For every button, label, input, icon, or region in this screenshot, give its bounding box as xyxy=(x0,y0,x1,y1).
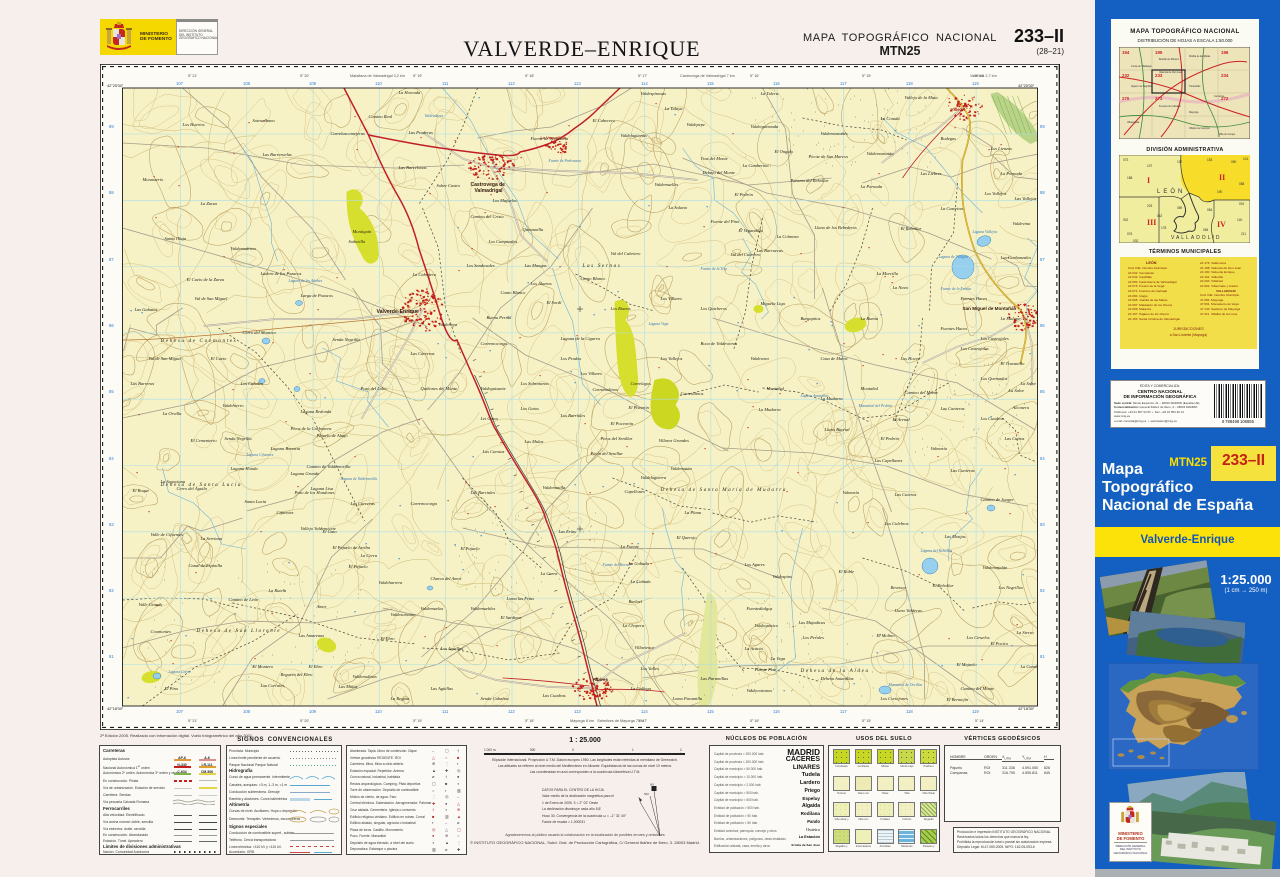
svg-text:Los Corrales: Los Corrales xyxy=(260,683,285,688)
svg-text:Los Ciruelos: Los Ciruelos xyxy=(966,635,990,640)
svg-text:Llano de los Bebederos: Llano de los Bebederos xyxy=(814,225,857,230)
svg-text:5° 16′: 5° 16′ xyxy=(750,719,759,723)
svg-text:Los Perales: Los Perales xyxy=(802,635,825,640)
svg-text:El Sardinar: El Sardinar xyxy=(500,615,522,620)
svg-text:87: 87 xyxy=(1040,257,1045,262)
svg-text:112: 112 xyxy=(508,709,515,714)
svg-text:116: 116 xyxy=(773,81,780,86)
svg-text:Mayorga 8 km Sahelices de Ma: Mayorga 8 km Sahelices de Mayorga 7 km xyxy=(570,719,644,723)
svg-text:Los Culebros: Los Culebros xyxy=(884,521,909,526)
svg-text:Carremocorga: Carremocorga xyxy=(481,341,508,346)
svg-text:084: 084 xyxy=(1203,228,1209,232)
svg-text:Valdevina: Valdevina xyxy=(1013,221,1031,226)
svg-text:089: 089 xyxy=(1177,206,1183,210)
svg-text:Valdemolinos: Valdemolinos xyxy=(353,674,377,679)
svg-text:LEÓN: LEÓN xyxy=(1157,188,1185,195)
svg-text:VALLADOLID: VALLADOLID xyxy=(1171,235,1221,241)
svg-text:Los Quicheros: Los Quicheros xyxy=(700,306,727,311)
svg-text:Los Barriales: Los Barriales xyxy=(470,490,496,495)
svg-text:5° 20′: 5° 20′ xyxy=(300,719,309,723)
svg-text:Camino del Cristo: Camino del Cristo xyxy=(471,214,505,219)
svg-text:Sotrualbano: Sotrualbano xyxy=(253,118,276,123)
svg-text:Llano Burcial: Llano Burcial xyxy=(824,427,851,432)
svg-text:San Miguel de Montañán: San Miguel de Montañán xyxy=(963,306,1017,311)
svg-text:Los Cañales: Los Cañales xyxy=(240,381,264,386)
svg-text:032: 032 xyxy=(1133,239,1139,243)
svg-text:El Pedrón: El Pedrón xyxy=(734,192,754,197)
svg-text:89: 89 xyxy=(109,124,114,129)
svg-text:Boca de Valdevieras: Boca de Valdevieras xyxy=(701,341,738,346)
svg-text:178: 178 xyxy=(1161,226,1167,230)
svg-text:Amor: Amor xyxy=(316,604,327,609)
svg-text:El Cabecero: El Cabecero xyxy=(592,118,616,123)
svg-text:Las Barruecas: Las Barruecas xyxy=(756,248,784,253)
svg-text:Bodegas: Bodegas xyxy=(941,136,957,141)
svg-text:Cerro del Montico: Cerro del Montico xyxy=(243,330,277,335)
svg-text:La Mudarra: La Mudarra xyxy=(758,407,782,412)
svg-text:Los Quemados: Los Quemados xyxy=(980,376,1008,381)
svg-text:Valdelaguerra: Valdelaguerra xyxy=(641,475,667,480)
svg-text:La Chopera: La Chopera xyxy=(622,623,645,628)
svg-text:81: 81 xyxy=(1040,654,1045,659)
svg-text:111: 111 xyxy=(442,709,449,714)
svg-text:118: 118 xyxy=(906,709,913,714)
svg-text:El Bermejín: El Bermejín xyxy=(946,697,969,702)
svg-text:NV: NV xyxy=(650,783,654,787)
svg-text:La Sierra: La Sierra xyxy=(1016,630,1035,635)
svg-text:Carremocorga: Carremocorga xyxy=(411,501,438,506)
svg-text:IV: IV xyxy=(1217,220,1226,229)
svg-text:Algarre de Negrillos: Algarre de Negrillos xyxy=(1131,85,1153,88)
svg-text:Valdemuelles: Valdemuelles xyxy=(655,182,679,187)
svg-text:Tordesillas: Tordesillas xyxy=(1189,85,1201,88)
svg-text:Los Huertos: Los Huertos xyxy=(182,122,205,127)
svg-text:084: 084 xyxy=(1207,208,1213,212)
svg-text:190: 190 xyxy=(1217,190,1223,194)
svg-text:El Sordí: El Sordí xyxy=(546,300,562,305)
svg-text:5° 18′: 5° 18′ xyxy=(525,74,534,78)
svg-text:42°18′30″: 42°18′30″ xyxy=(107,707,124,711)
svg-text:La Cotada: La Cotada xyxy=(880,116,901,121)
svg-text:Reguera del Ebro: Reguera del Ebro xyxy=(280,672,314,677)
svg-text:5° 19′: 5° 19′ xyxy=(413,719,422,723)
svg-text:Los Cortejones: Los Cortejones xyxy=(880,696,909,701)
svg-text:Debajo del Monte: Debajo del Monte xyxy=(702,170,736,175)
svg-text:Santa Olaja: Santa Olaja xyxy=(165,236,187,241)
svg-text:Los Vallejos: Los Vallejos xyxy=(984,191,1007,196)
svg-text:El Roque: El Roque xyxy=(132,488,150,493)
svg-text:Miguela Liqa: Miguela Liqa xyxy=(760,301,786,306)
svg-text:Los Sandovales: Los Sandovales xyxy=(466,263,495,268)
svg-text:117: 117 xyxy=(840,81,847,86)
svg-text:84: 84 xyxy=(1040,456,1045,461)
svg-text:El Pajuelo: El Pajuelo xyxy=(460,546,481,551)
svg-text:Valverde-Enrique: Valverde-Enrique xyxy=(377,309,419,315)
svg-text:Valdemontañés: Valdemontañés xyxy=(821,131,848,136)
svg-text:El Molino: El Molino xyxy=(876,633,896,638)
svg-text:Los Majuelos: Los Majuelos xyxy=(492,198,518,203)
svg-text:Matallana de Valmadrigal 3,2 k: Matallana de Valmadrigal 3,2 km xyxy=(350,74,405,78)
svg-text:Las Matas: Las Matas xyxy=(338,684,358,689)
svg-text:Laguna de Villagra: Laguna de Villagra xyxy=(938,255,969,259)
svg-text:Laguna del Rebollar: Laguna del Rebollar xyxy=(920,549,953,553)
svg-text:Fuente de Pedrosana: Fuente de Pedrosana xyxy=(548,159,581,163)
svg-text:Camino del Monte: Camino del Monte xyxy=(905,390,939,395)
svg-text:Valdesomonte: Valdesomonte xyxy=(391,612,416,617)
svg-text:El Vegandillo: El Vegandillo xyxy=(738,228,764,233)
svg-text:81: 81 xyxy=(109,654,114,659)
svg-text:La Caserina: La Caserina xyxy=(940,206,964,211)
svg-text:La Salve: La Salve xyxy=(1020,381,1037,386)
svg-text:El Cueto de la Zarza: El Cueto de la Zarza xyxy=(186,277,225,282)
svg-text:85: 85 xyxy=(109,389,114,394)
svg-text:Las Erías: Las Erías xyxy=(558,529,577,534)
svg-text:Los Gatos: Los Gatos xyxy=(520,406,540,411)
svg-text:Laguna Redonda: Laguna Redonda xyxy=(300,409,333,414)
svg-text:42°25′30″: 42°25′30″ xyxy=(1018,84,1035,88)
svg-text:109: 109 xyxy=(309,81,317,86)
svg-text:La Fuente: La Fuente xyxy=(620,544,639,549)
svg-text:Villaquejida: Villaquejida xyxy=(1127,121,1140,124)
svg-text:Los Prados: Los Prados xyxy=(560,356,582,361)
svg-text:Vallejo de la Mata: Vallejo de la Mata xyxy=(905,95,939,100)
svg-text:Revenca: Revenca xyxy=(890,585,907,590)
svg-text:El Pocico: El Pocico xyxy=(990,641,1009,646)
svg-text:La Solana: La Solana xyxy=(668,205,688,210)
svg-text:Las Monjas: Las Monjas xyxy=(944,534,966,539)
svg-text:Valdemadrina: Valdemadrina xyxy=(231,246,257,251)
svg-text:Coomontes: Coomontes xyxy=(151,629,171,634)
svg-text:Sobre Castro: Sobre Castro xyxy=(437,183,461,188)
svg-text:Las Vallejas: Las Vallejas xyxy=(1014,196,1037,201)
svg-text:Las Gabatas: Las Gabatas xyxy=(134,307,158,312)
svg-text:Valmaría: Valmaría xyxy=(931,446,948,451)
svg-text:Laguna Cifuentes: Laguna Cifuentes xyxy=(246,453,274,457)
svg-text:Fuente Flor: Fuente Flor xyxy=(754,667,777,672)
svg-text:115: 115 xyxy=(707,709,714,714)
svg-text:Valencia de Don Juan: Valencia de Don Juan xyxy=(1159,71,1183,74)
svg-text:La Cerra: La Cerra xyxy=(360,553,378,558)
svg-text:101: 101 xyxy=(1243,157,1249,161)
svg-text:85: 85 xyxy=(1040,389,1045,394)
svg-text:Valdeadorez: Valdeadorez xyxy=(425,114,444,118)
svg-text:Bargapitos: Bargapitos xyxy=(801,316,821,321)
svg-text:Camino de León: Camino de León xyxy=(229,597,259,602)
svg-text:La Morcilla: La Morcilla xyxy=(876,271,899,276)
svg-text:Valdecestanos: Valdecestanos xyxy=(747,688,773,693)
svg-text:Los Cuadros: Los Cuadros xyxy=(980,416,1004,421)
svg-text:La Serriana: La Serriana xyxy=(200,536,223,541)
svg-text:Laguna Corva: Laguna Corva xyxy=(168,670,191,674)
svg-text:Montañal: Montañal xyxy=(860,386,879,391)
svg-text:195: 195 xyxy=(1155,50,1163,55)
svg-text:073: 073 xyxy=(1123,158,1129,162)
svg-text:Barlael: Barlael xyxy=(629,599,643,604)
svg-text:El Pedrón: El Pedrón xyxy=(880,436,900,441)
svg-text:El Cementerio: El Cementerio xyxy=(190,438,218,443)
svg-text:III: III xyxy=(1147,218,1156,227)
svg-text:Valencia 2,7 km: Valencia 2,7 km xyxy=(970,74,997,78)
svg-text:La Acacia: La Acacia xyxy=(744,646,764,651)
svg-text:140: 140 xyxy=(1237,218,1243,222)
svg-text:119: 119 xyxy=(972,81,979,86)
svg-text:La Plana: La Plana xyxy=(684,510,702,515)
svg-text:110: 110 xyxy=(375,709,382,714)
svg-text:Picos de la Carbonera: Picos de la Carbonera xyxy=(290,426,333,431)
svg-text:Vallejo Valdemicete: Vallejo Valdemicete xyxy=(301,526,336,531)
svg-text:108: 108 xyxy=(243,709,251,714)
svg-text:107: 107 xyxy=(1147,164,1153,168)
svg-text:Montiquín: Montiquín xyxy=(352,229,372,234)
svg-text:Las Agüillas: Las Agüillas xyxy=(430,686,454,691)
svg-text:091: 091 xyxy=(1239,202,1245,206)
svg-text:Fuente de la Ermita: Fuente de la Ermita xyxy=(940,287,972,291)
svg-text:Ludera de los Pozacos: Ludera de los Pozacos xyxy=(260,271,302,276)
svg-text:Los Agares: Los Agares xyxy=(744,562,765,567)
svg-text:Cifuentes: Cifuentes xyxy=(277,510,294,515)
svg-text:115: 115 xyxy=(707,81,714,86)
svg-text:Valdevara: Valdevara xyxy=(751,356,770,361)
svg-text:Valdespinosas: Valdespinosas xyxy=(641,91,667,96)
svg-text:Las Amarenas: Las Amarenas xyxy=(298,633,325,638)
svg-text:Bustillo de Páramo: Bustillo de Páramo xyxy=(1159,58,1180,61)
svg-text:Fuentedialgos: Fuentedialgos xyxy=(746,606,773,611)
svg-text:Morilla de las Matas: Morilla de las Matas xyxy=(1189,55,1211,58)
svg-text:Villeza: Villeza xyxy=(951,107,966,112)
svg-text:Montañal: Montañal xyxy=(766,386,785,391)
svg-text:Valdemontatán: Valdemontatán xyxy=(867,151,895,156)
svg-text:La Camberina: La Camberina xyxy=(742,163,770,168)
svg-text:El Ebro: El Ebro xyxy=(308,664,324,669)
svg-text:Val de San Miguel: Val de San Miguel xyxy=(149,356,183,361)
svg-text:83: 83 xyxy=(1040,522,1045,527)
svg-text:Las Cuestas: Las Cuestas xyxy=(482,449,505,454)
svg-text:Mayorga: Mayorga xyxy=(1189,111,1199,114)
svg-text:Valdehoya: Valdehoya xyxy=(439,322,458,327)
svg-text:La Salve: La Salve xyxy=(1008,388,1025,393)
svg-text:Las Barreruelas: Las Barreruelas xyxy=(262,152,292,157)
svg-text:Laguna Vega: Laguna Vega xyxy=(648,322,669,326)
svg-text:Valle de Cifuentes: Valle de Cifuentes xyxy=(151,532,184,537)
svg-text:Fuentes de Carbajal: Fuentes de Carbajal xyxy=(1159,105,1181,108)
svg-text:Tras del Monte: Tras del Monte xyxy=(701,156,728,161)
svg-text:II: II xyxy=(1219,173,1225,182)
svg-text:107: 107 xyxy=(176,81,184,86)
svg-text:119: 119 xyxy=(972,709,979,714)
svg-text:Fuente del Pino: Fuente del Pino xyxy=(710,219,740,224)
svg-text:Carretalinos: Carretalinos xyxy=(681,391,704,396)
svg-text:El Majuelo: El Majuelo xyxy=(956,662,978,667)
svg-text:107: 107 xyxy=(176,709,184,714)
svg-text:902: 902 xyxy=(1123,218,1129,222)
svg-text:Las Barcelonas: Las Barcelonas xyxy=(398,165,427,170)
svg-text:Laguna Grande: Laguna Grande xyxy=(290,471,320,476)
svg-text:Villavience: Villavience xyxy=(635,645,655,650)
svg-text:Laguna Bonarta: Laguna Bonarta xyxy=(270,446,301,451)
svg-text:234: 234 xyxy=(1221,73,1229,78)
svg-text:Llano Valderas: Llano Valderas xyxy=(894,608,923,613)
svg-text:Los Lienzos: Los Lienzos xyxy=(990,146,1013,151)
svg-text:El Ongido: El Ongido xyxy=(774,149,794,154)
svg-text:La Cabritera: La Cabritera xyxy=(412,272,437,277)
svg-text:Pozo del Lobo: Pozo del Lobo xyxy=(360,386,388,391)
svg-text:Picón del Senillar: Picón del Senillar xyxy=(590,451,624,456)
svg-text:Los Barriales: Los Barriales xyxy=(560,413,586,418)
svg-text:La Talaya: La Talaya xyxy=(664,106,684,111)
svg-text:Las Carrevas: Las Carrevas xyxy=(350,501,375,506)
svg-text:Los Vallejos: Los Vallejos xyxy=(660,356,683,361)
svg-text:La Veguellina: La Veguellina xyxy=(541,135,567,140)
svg-text:270: 270 xyxy=(1122,96,1130,101)
svg-text:Valle Grande: Valle Grande xyxy=(139,602,163,607)
svg-text:Quiñones del Monte: Quiñones del Monte xyxy=(421,386,458,391)
svg-text:Manantial de Orcillas: Manantial de Orcillas xyxy=(888,683,923,687)
svg-text:Los Álamos: Los Álamos xyxy=(530,281,552,286)
svg-text:Los Campizales: Los Campizales xyxy=(488,239,518,244)
svg-text:Albires: Albires xyxy=(593,677,609,682)
svg-text:114: 114 xyxy=(641,709,648,714)
svg-text:86: 86 xyxy=(1040,323,1045,328)
svg-text:Carramolinos: Carramolinos xyxy=(593,387,619,392)
svg-text:116: 116 xyxy=(773,709,780,714)
svg-text:Laguna de Valdemorilla: Laguna de Valdemorilla xyxy=(340,477,378,481)
svg-text:I: I xyxy=(1147,176,1150,185)
svg-text:Los Valles: Los Valles xyxy=(640,666,660,671)
svg-text:Villalón de Campos: Villalón de Campos xyxy=(1189,127,1210,130)
svg-text:Larga de Pozacos: Larga de Pozacos xyxy=(300,293,334,298)
svg-text:La Canal: La Canal xyxy=(1020,664,1039,669)
svg-text:5° 19′: 5° 19′ xyxy=(413,74,422,78)
svg-text:El Pocerón: El Pocerón xyxy=(628,405,650,410)
svg-text:Las Majadicas: Las Majadicas xyxy=(798,620,826,625)
svg-text:Los Castrojales: Los Castrojales xyxy=(980,336,1009,341)
svg-text:Las Sernas: Las Sernas xyxy=(582,263,622,269)
svg-text:El Querojo: El Querojo xyxy=(676,535,698,540)
svg-text:La Rutela: La Rutela xyxy=(268,588,287,593)
svg-text:Valmaría: Valmaría xyxy=(843,490,860,495)
svg-text:5° 15′: 5° 15′ xyxy=(862,719,871,723)
svg-text:Las Canteras: Las Canteras xyxy=(940,406,965,411)
svg-text:Canto Blanco: Canto Blanco xyxy=(501,290,527,295)
svg-text:232: 232 xyxy=(1122,73,1130,78)
svg-text:Villa de Cerqos: Villa de Cerqos xyxy=(1219,133,1236,136)
svg-text:Valdeguisante: Valdeguisante xyxy=(481,386,506,391)
svg-text:Dehesa de Santa Lucía: Dehesa de Santa Lucía xyxy=(160,482,243,488)
svg-text:La Vega: La Vega xyxy=(770,656,786,661)
svg-text:Picos del Senillar: Picos del Senillar xyxy=(600,436,633,441)
svg-text:Los Castrojales: Los Castrojales xyxy=(960,346,989,351)
svg-text:Buena Pernal: Buena Pernal xyxy=(487,315,513,320)
svg-text:113: 113 xyxy=(574,81,581,86)
svg-text:Monasterio: Monasterio xyxy=(142,177,164,182)
svg-text:Dehesa Antanillas: Dehesa Antanillas xyxy=(820,676,854,681)
svg-text:Los Aguillas: Los Aguillas xyxy=(440,646,464,651)
svg-text:42°25′30″: 42°25′30″ xyxy=(107,84,124,88)
svg-text:108: 108 xyxy=(243,81,251,86)
svg-text:211: 211 xyxy=(1241,232,1246,236)
svg-text:88: 88 xyxy=(1040,190,1045,195)
svg-text:Fuente de la Teja: Fuente de la Teja xyxy=(700,267,727,271)
svg-text:5° 21′: 5° 21′ xyxy=(188,74,197,78)
svg-text:271: 271 xyxy=(1155,96,1163,101)
svg-text:Castrovega de Valmadrigal 7 km: Castrovega de Valmadrigal 7 km xyxy=(680,74,735,78)
svg-text:Valdematilla: Valdematilla xyxy=(543,485,566,490)
svg-text:Camino de Juagre: Camino de Juagre xyxy=(981,497,1014,502)
svg-text:196: 196 xyxy=(1221,50,1229,55)
svg-text:Canal de Espinilla: Canal de Espinilla xyxy=(189,563,224,568)
svg-text:NM: NM xyxy=(644,792,649,796)
svg-text:El Travanillo: El Travanillo xyxy=(1000,361,1026,366)
svg-text:Dehesa de Coomontes: Dehesa de Coomontes xyxy=(160,338,238,344)
svg-text:Villares Grandes: Villares Grandes xyxy=(659,438,690,443)
svg-text:La Gobada: La Gobada xyxy=(628,561,650,566)
svg-text:050: 050 xyxy=(1231,160,1237,164)
svg-text:89: 89 xyxy=(1040,124,1045,129)
svg-text:Las Barreras: Las Barreras xyxy=(130,381,155,386)
svg-text:87: 87 xyxy=(109,257,114,262)
svg-text:112: 112 xyxy=(508,81,515,86)
svg-text:110: 110 xyxy=(375,81,382,86)
svg-text:84: 84 xyxy=(109,456,114,461)
svg-text:Fuentes Haces: Fuentes Haces xyxy=(940,326,968,331)
svg-text:Canto Blanco: Canto Blanco xyxy=(581,276,607,281)
svg-text:Laguna de la Cigarra: Laguna de la Cigarra xyxy=(560,336,601,341)
svg-text:Valdematán: Valdematán xyxy=(671,466,693,471)
svg-text:Laguna Honda: Laguna Honda xyxy=(230,466,259,471)
svg-text:Los Garbanzales: Los Garbanzales xyxy=(1000,255,1032,260)
svg-text:82: 82 xyxy=(109,588,114,593)
svg-text:Carrelascomejeras: Carrelascomejeras xyxy=(331,131,366,136)
svg-text:Valdequiemada: Valdequiemada xyxy=(751,124,779,129)
svg-text:Valdequinico: Valdequinico xyxy=(755,623,779,628)
svg-text:86: 86 xyxy=(109,323,114,328)
svg-text:La Colmena: La Colmena xyxy=(776,234,800,239)
svg-text:117: 117 xyxy=(840,709,847,714)
svg-text:Val de San Miguel: Val de San Miguel xyxy=(195,296,229,301)
svg-text:5° 16′: 5° 16′ xyxy=(750,74,759,78)
svg-text:Las Cuieras: Las Cuieras xyxy=(894,492,917,497)
svg-text:188: 188 xyxy=(1127,176,1133,180)
svg-text:5° 20′: 5° 20′ xyxy=(300,74,309,78)
svg-text:La Gallega: La Gallega xyxy=(630,686,652,691)
svg-text:Alconera: Alconera xyxy=(1012,405,1030,410)
svg-text:Senda Negrilla: Senda Negrilla xyxy=(333,337,361,342)
svg-text:El Pino: El Pino xyxy=(164,686,179,691)
svg-text:Santa Lucía: Santa Lucía xyxy=(245,499,267,504)
svg-text:Fuente del Horno: Fuente del Horno xyxy=(602,563,630,567)
svg-text:Laguna Vallejos: Laguna Vallejos xyxy=(972,230,998,234)
svg-text:Valdeharrera: Valdeharrera xyxy=(379,580,404,585)
svg-text:5° 17′: 5° 17′ xyxy=(638,74,647,78)
svg-text:El Roble: El Roble xyxy=(838,569,855,574)
svg-text:Loma Puramilla: Loma Puramilla xyxy=(672,696,703,701)
svg-text:El Arenal: El Arenal xyxy=(892,417,911,422)
svg-text:Valdemuebles: Valdemuebles xyxy=(471,606,496,611)
svg-text:Fuentes Haces: Fuentes Haces xyxy=(960,296,988,301)
svg-text:197: 197 xyxy=(1177,160,1183,164)
svg-text:El Pocearón: El Pocearón xyxy=(610,421,634,426)
svg-text:La Horcada: La Horcada xyxy=(398,90,421,95)
svg-text:Soñarilla: Soñarilla xyxy=(349,239,367,244)
svg-text:82: 82 xyxy=(1040,588,1045,593)
svg-text:El Rebollar: El Rebollar xyxy=(932,583,954,588)
svg-text:La Corra: La Corra xyxy=(540,571,559,576)
svg-text:5° 18′: 5° 18′ xyxy=(525,719,534,723)
svg-text:Las Carreras: Las Carreras xyxy=(410,351,435,356)
svg-text:Las Capellanes: Las Capellanes xyxy=(874,458,903,463)
svg-text:El Rebollar: El Rebollar xyxy=(900,226,922,231)
svg-text:La Pornada: La Pornada xyxy=(1000,171,1023,176)
